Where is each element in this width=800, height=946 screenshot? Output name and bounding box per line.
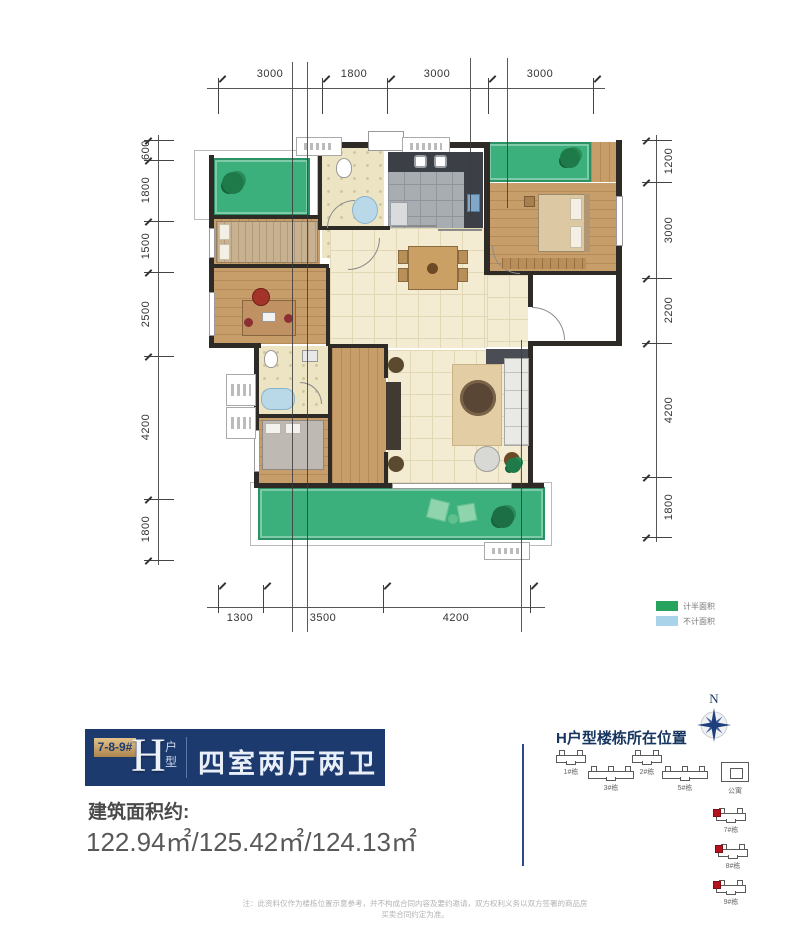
window: [209, 228, 215, 258]
building-icon: [728, 855, 738, 859]
pillow: [570, 226, 582, 248]
window-tag: [226, 407, 256, 439]
dining-chair: [458, 250, 468, 264]
dim-tick: [322, 78, 323, 114]
section-divider: [522, 744, 524, 866]
dim-label-right: 3000: [663, 204, 675, 256]
dim-label-bottom: 1300: [214, 612, 266, 624]
balcony-mat: [457, 503, 478, 524]
dining-chair: [458, 268, 468, 282]
wall: [318, 146, 322, 230]
dim-label-left: 1500: [140, 220, 152, 272]
dim-label-top: 3000: [411, 68, 463, 80]
dim-chain-top: [207, 88, 605, 89]
dim-label-right: 1200: [663, 135, 675, 187]
toilet: [336, 158, 352, 178]
sliding-door: [438, 229, 482, 231]
plant: [492, 506, 514, 528]
unit-type-banner: 7-8-9# H 户型 四室两厅两卫: [85, 729, 385, 786]
unit-type-letter: H: [131, 727, 166, 785]
kitchen-sink: [467, 194, 480, 212]
dim-label-right: 1800: [663, 481, 675, 533]
window-tag: [226, 374, 256, 406]
tv-cabinet: [386, 382, 401, 450]
dim-label-left: 1800: [140, 503, 152, 555]
building-3: 3#栋: [588, 766, 634, 792]
shower-tub: [352, 196, 378, 224]
dim-label-top: 3000: [244, 68, 296, 80]
dim-tick: [387, 78, 388, 114]
desk-chair: [252, 288, 270, 306]
wall: [484, 142, 490, 275]
dim-tick: [642, 343, 672, 344]
bathtub: [261, 388, 295, 410]
axis-line: [307, 62, 308, 632]
stove-burner: [434, 155, 447, 168]
wall: [209, 215, 321, 219]
building-2: 2#栋: [632, 750, 662, 776]
dim-label-top: 1800: [328, 68, 380, 80]
stool: [388, 357, 404, 373]
wall: [487, 271, 622, 275]
dining-chair: [398, 268, 408, 282]
building-1: 1#栋: [556, 750, 586, 776]
building-5: 5#栋: [662, 766, 708, 792]
building-label: 3#栋: [588, 785, 634, 792]
legend-swatch-blue: [656, 616, 678, 626]
building-label: 9#栋: [716, 899, 746, 906]
fridge: [390, 202, 408, 226]
building-label: 1#栋: [556, 769, 586, 776]
pillow: [570, 198, 582, 220]
building-icon: [606, 777, 616, 781]
building-icon: [642, 761, 652, 765]
axis-line: [470, 58, 471, 218]
bedroom-3-ext: [332, 348, 386, 484]
building-numbers-tag: 7-8-9#: [94, 738, 136, 757]
building-label: 8#栋: [718, 863, 748, 870]
unit-type-suffix: 户型: [165, 740, 179, 770]
axis-line: [507, 58, 508, 208]
wall: [528, 341, 622, 346]
nightstand: [524, 196, 535, 207]
building-8-highlighted: 8#栋: [718, 844, 748, 870]
pillow: [219, 224, 230, 240]
compass-north-label: N: [692, 692, 736, 705]
highlighted-unit-marker: [713, 809, 721, 817]
legend-label: 不计面积: [683, 616, 715, 627]
legend-swatch-green: [656, 601, 678, 611]
dim-label-bottom: 3500: [297, 612, 349, 624]
dim-label-right: 2200: [663, 284, 675, 336]
balcony-stone: [448, 514, 458, 524]
master-bed: [538, 194, 590, 252]
area-label: 建筑面积约:: [88, 797, 189, 824]
dim-label-right: 4200: [663, 384, 675, 436]
dim-tick: [218, 78, 219, 114]
master-bed-headboard: [584, 194, 590, 252]
layout-title: 四室两厅两卫: [198, 742, 378, 781]
dim-label-left: 1800: [140, 164, 152, 216]
stove-burner: [414, 155, 427, 168]
dim-tick: [144, 560, 174, 561]
stool: [388, 456, 404, 472]
kitchen-counter-right: [464, 152, 483, 228]
wall: [384, 452, 388, 485]
dim-label-bottom: 4200: [430, 612, 482, 624]
wall: [209, 264, 329, 268]
floorplan-page: 3000 1800 3000 3000 600 1800 1500 2500 4…: [0, 0, 800, 946]
dining-centerpiece: [427, 263, 438, 274]
sink: [302, 350, 318, 362]
dim-tick: [144, 356, 174, 357]
dim-chain-left: [158, 135, 159, 565]
dim-tick: [263, 585, 264, 613]
toilet: [264, 350, 278, 368]
window: [616, 196, 623, 246]
apartment-icon: [721, 762, 749, 782]
dim-tick: [642, 477, 672, 478]
building-label: 5#栋: [662, 785, 708, 792]
desk-plant: [244, 318, 253, 327]
pillow: [265, 423, 281, 434]
entry-hall: [487, 275, 528, 347]
axis-line: [521, 340, 522, 632]
floorplan-drawing: 3000 1800 3000 3000 600 1800 1500 2500 4…: [0, 0, 800, 680]
banner-divider: [186, 737, 187, 778]
master-dresser: [502, 258, 586, 269]
building-icon: [680, 777, 690, 781]
dim-tick: [593, 78, 594, 114]
dim-tick: [642, 278, 672, 279]
building-7-highlighted: 7#栋: [716, 808, 746, 834]
pillow: [285, 423, 301, 434]
axis-line: [292, 62, 293, 632]
wall: [528, 273, 533, 307]
building-label: 公寓: [720, 788, 750, 795]
building-9-highlighted: 9#栋: [716, 880, 746, 906]
dim-tick: [530, 585, 531, 613]
window-tag: [296, 137, 342, 156]
window: [209, 292, 215, 336]
lounge-chair: [474, 446, 500, 472]
dim-tick: [642, 537, 672, 538]
bed-2: [216, 221, 318, 263]
dim-tick: [218, 585, 219, 613]
compass: N: [692, 692, 736, 750]
dining-chair: [398, 250, 408, 264]
dim-tick: [144, 272, 174, 273]
window: [392, 483, 512, 489]
coffee-table: [460, 380, 496, 416]
dim-label-left: 2500: [140, 288, 152, 340]
location-title: H户型楼栋所在位置: [556, 727, 687, 748]
highlighted-unit-marker: [715, 845, 723, 853]
building-label: 7#栋: [716, 827, 746, 834]
wall: [254, 414, 332, 418]
compass-rose-icon: [692, 705, 736, 745]
building-icon: [726, 891, 736, 895]
building-label: 2#栋: [632, 769, 662, 776]
plant: [222, 172, 244, 194]
highlighted-unit-marker: [713, 881, 721, 889]
dim-chain-bottom: [207, 607, 545, 608]
pillow: [219, 244, 230, 260]
flue-box: [368, 131, 404, 151]
building-apartment: 公寓: [720, 762, 750, 795]
window-tag: [484, 542, 530, 560]
dim-tick: [144, 499, 174, 500]
dim-tick: [383, 585, 384, 613]
plant: [560, 148, 580, 168]
legend-label: 计半面积: [683, 601, 715, 612]
dim-label-left: 4200: [140, 401, 152, 453]
dim-tick: [488, 78, 489, 114]
disclaimer-text: 注：此资料仅作为楼栋位置示意参考，并不构成合同内容及要约邀请，双方权利义务以双方…: [240, 898, 590, 920]
dim-chain-right: [656, 135, 657, 542]
wall: [326, 268, 330, 346]
wall: [330, 344, 388, 348]
door-arc-entry: [532, 307, 565, 340]
building-icon: [726, 819, 736, 823]
sofa: [504, 358, 529, 446]
laptop: [262, 312, 276, 322]
plant: [506, 458, 521, 473]
building-icon: [566, 761, 576, 765]
dim-label-top: 3000: [514, 68, 566, 80]
area-value: 122.94㎡/125.42㎡/124.13㎡: [86, 822, 417, 859]
